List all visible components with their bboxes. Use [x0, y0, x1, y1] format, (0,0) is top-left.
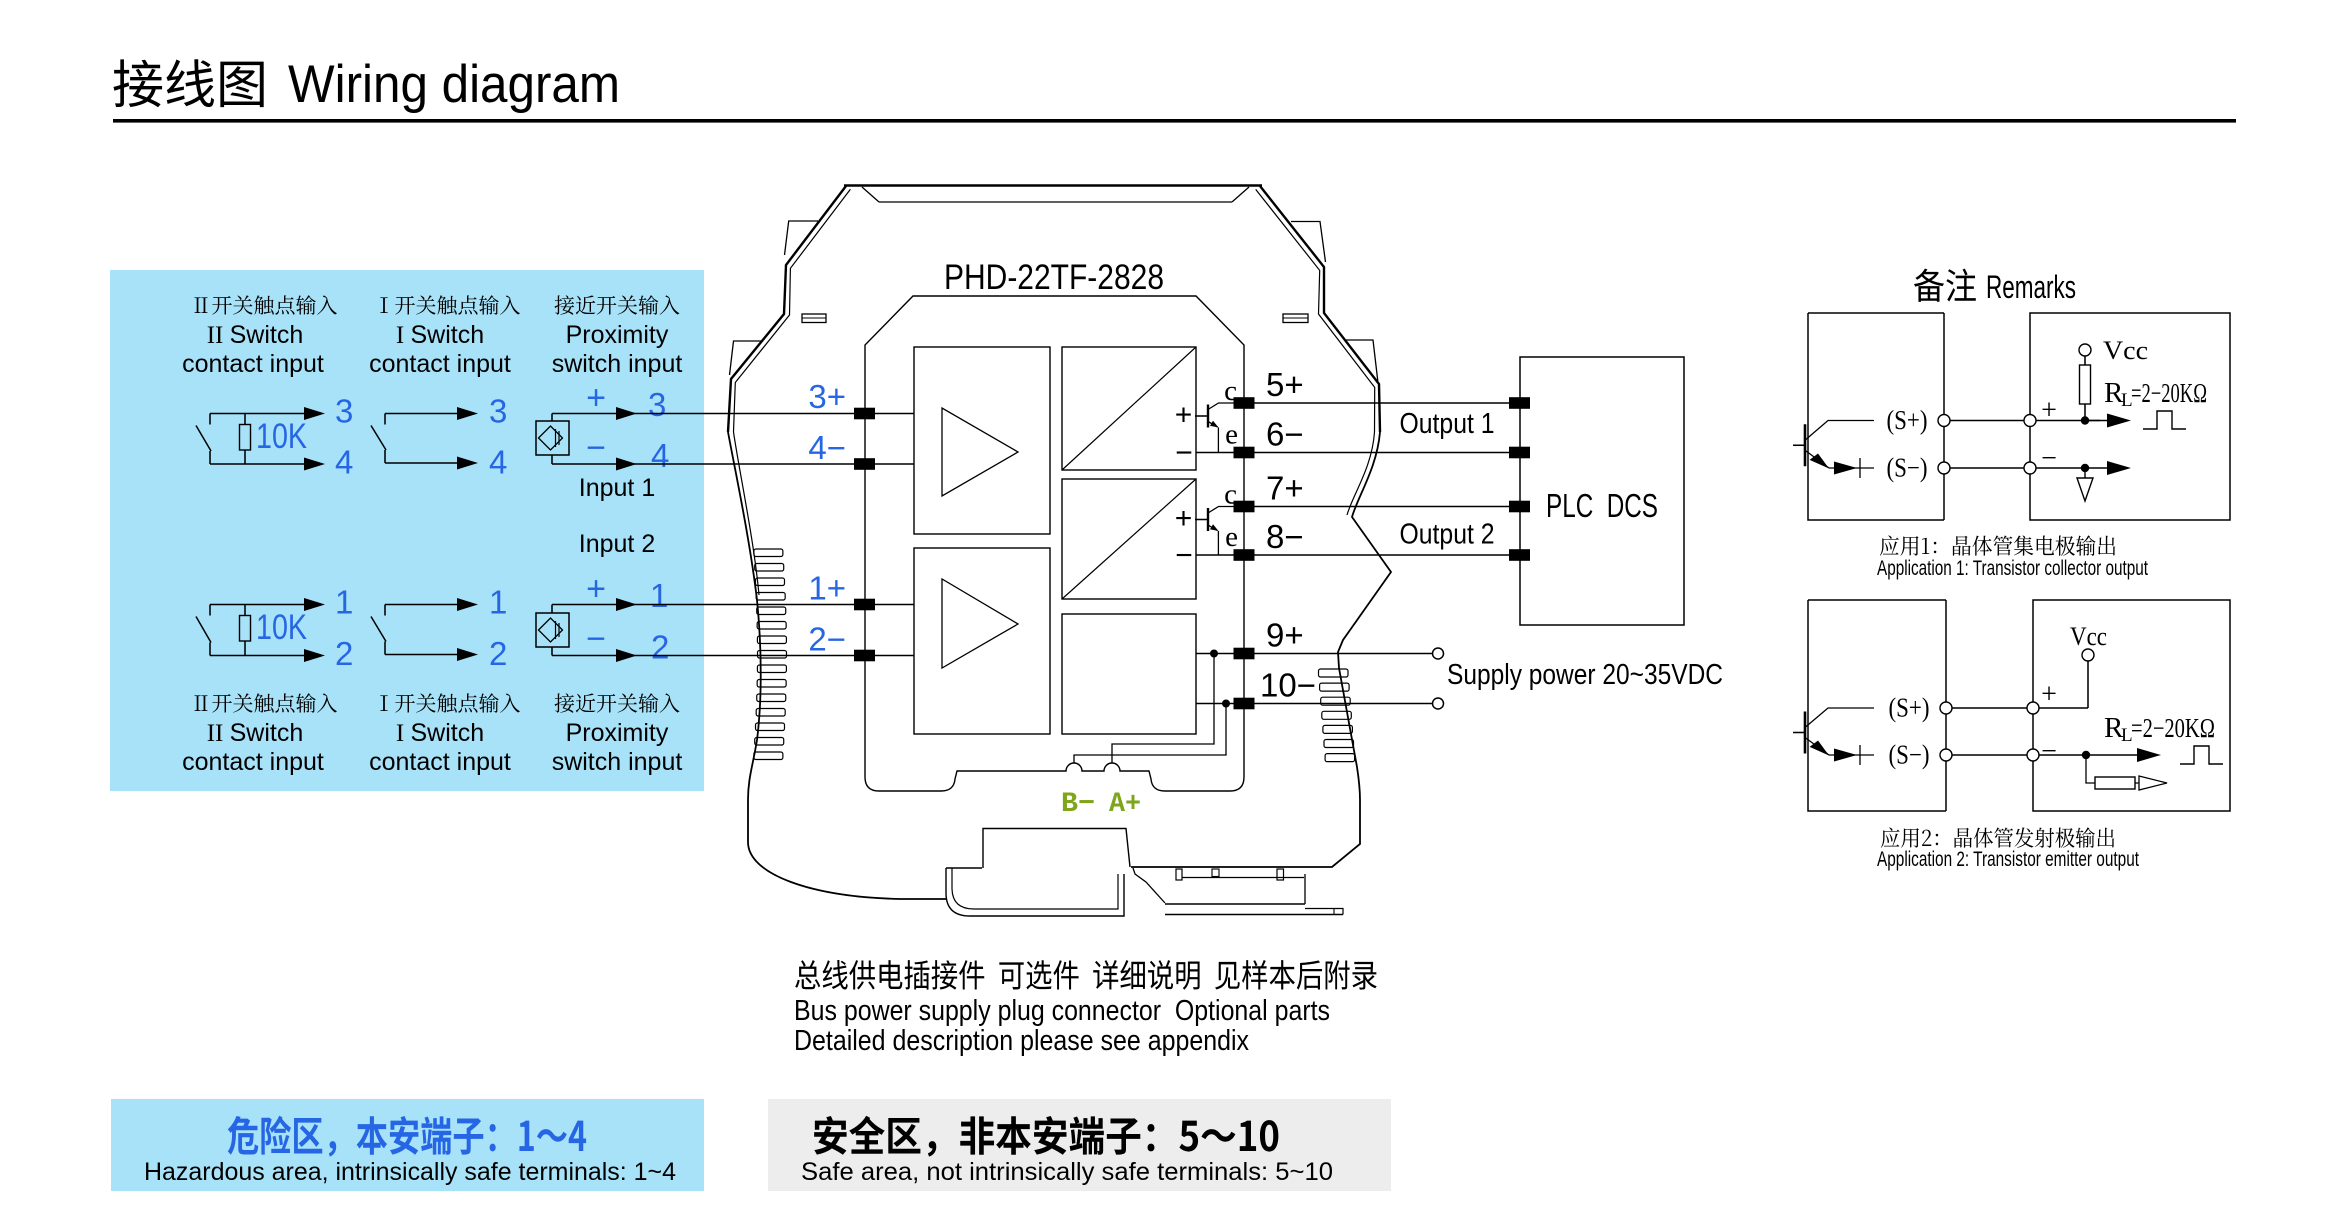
- svg-text:Hazardous area, intrinsically: Hazardous area, intrinsically safe termi…: [144, 1158, 676, 1186]
- svg-text:contact input: contact input: [369, 748, 511, 776]
- svg-text:3+: 3+: [808, 378, 846, 415]
- svg-text:=2−20KΩ: =2−20KΩ: [2131, 713, 2215, 743]
- svg-text:I Switch: I Switch: [396, 719, 484, 747]
- svg-text:9+: 9+: [1266, 617, 1304, 654]
- svg-text:Remarks: Remarks: [1986, 269, 2076, 305]
- svg-text:II Switch: II Switch: [207, 719, 304, 747]
- svg-text:e: e: [1225, 419, 1238, 451]
- svg-text:Application 1: Transistor coll: Application 1: Transistor collector outp…: [1877, 557, 2148, 580]
- svg-text:−: −: [1175, 539, 1193, 572]
- svg-text:10K: 10K: [256, 417, 307, 456]
- svg-text:II Switch: II Switch: [207, 321, 304, 349]
- svg-text:+: +: [2041, 395, 2057, 426]
- svg-text:10K: 10K: [256, 608, 307, 647]
- svg-text:−: −: [586, 429, 606, 467]
- svg-text:Detailed description please se: Detailed description please see appendix: [794, 1025, 1249, 1057]
- svg-text:=2−20KΩ: =2−20KΩ: [2131, 378, 2207, 408]
- svg-text:+: +: [586, 570, 606, 608]
- svg-text:Bus power supply plug connecto: Bus power supply plug connector Optional…: [794, 995, 1330, 1027]
- svg-text:B−: B−: [1061, 789, 1095, 820]
- svg-text:3: 3: [648, 386, 666, 423]
- svg-text:switch input: switch input: [552, 748, 683, 776]
- svg-text:c: c: [1224, 375, 1237, 407]
- svg-text:3: 3: [335, 393, 353, 430]
- svg-text:+: +: [1175, 399, 1193, 432]
- svg-text:2−: 2−: [808, 621, 846, 658]
- svg-text:switch input: switch input: [552, 350, 683, 378]
- svg-text:Output 2: Output 2: [1400, 519, 1495, 551]
- svg-text:+: +: [2041, 679, 2057, 710]
- svg-text:(S−): (S−): [1889, 740, 1930, 770]
- svg-text:(S+): (S+): [1887, 405, 1928, 435]
- svg-text:Input 2: Input 2: [579, 530, 655, 558]
- svg-text:Vcc: Vcc: [2070, 622, 2107, 651]
- svg-text:1: 1: [335, 584, 353, 621]
- svg-text:Output 1: Output 1: [1400, 408, 1495, 440]
- svg-text:contact input: contact input: [369, 350, 511, 378]
- svg-text:5+: 5+: [1266, 366, 1304, 403]
- svg-text:10−: 10−: [1260, 667, 1316, 704]
- svg-text:e: e: [1225, 521, 1238, 553]
- svg-text:Input 1: Input 1: [579, 474, 655, 502]
- svg-text:Wiring diagram: Wiring diagram: [288, 55, 620, 114]
- svg-text:3: 3: [489, 393, 507, 430]
- svg-text:4−: 4−: [808, 429, 846, 466]
- svg-text:PHD-22TF-2828: PHD-22TF-2828: [944, 258, 1164, 297]
- svg-text:2: 2: [489, 635, 507, 672]
- svg-text:A+: A+: [1109, 789, 1141, 820]
- svg-text:−: −: [586, 620, 606, 658]
- svg-text:−: −: [2041, 736, 2057, 767]
- svg-text:1+: 1+: [808, 570, 846, 607]
- svg-text:contact input: contact input: [182, 350, 324, 378]
- svg-text:Safe area, not intrinsically s: Safe area, not intrinsically safe termin…: [801, 1158, 1333, 1186]
- svg-text:PLC DCS: PLC DCS: [1546, 487, 1658, 524]
- svg-text:+: +: [586, 379, 606, 417]
- svg-text:−: −: [2041, 443, 2057, 474]
- svg-text:4: 4: [651, 437, 669, 474]
- svg-text:4: 4: [489, 444, 507, 481]
- svg-text:7+: 7+: [1266, 470, 1304, 507]
- svg-text:Supply power 20~35VDC: Supply power 20~35VDC: [1447, 659, 1723, 691]
- svg-text:1: 1: [650, 577, 668, 614]
- svg-text:2: 2: [651, 629, 669, 666]
- svg-text:Proximity: Proximity: [566, 321, 669, 349]
- svg-text:contact input: contact input: [182, 748, 324, 776]
- svg-text:Proximity: Proximity: [566, 719, 669, 747]
- svg-text:Application 2: Transistor emit: Application 2: Transistor emitter output: [1877, 848, 2139, 871]
- svg-text:6−: 6−: [1266, 416, 1304, 453]
- svg-text:(S+): (S+): [1889, 693, 1930, 723]
- svg-text:+: +: [1175, 502, 1193, 535]
- svg-text:c: c: [1224, 479, 1237, 511]
- svg-text:−: −: [1175, 437, 1193, 470]
- svg-text:2: 2: [335, 635, 353, 672]
- svg-text:Vcc: Vcc: [2103, 336, 2148, 365]
- svg-text:8−: 8−: [1266, 518, 1304, 555]
- svg-text:(S−): (S−): [1887, 453, 1928, 483]
- svg-text:4: 4: [335, 444, 353, 481]
- svg-text:I Switch: I Switch: [396, 321, 484, 349]
- svg-text:1: 1: [489, 584, 507, 621]
